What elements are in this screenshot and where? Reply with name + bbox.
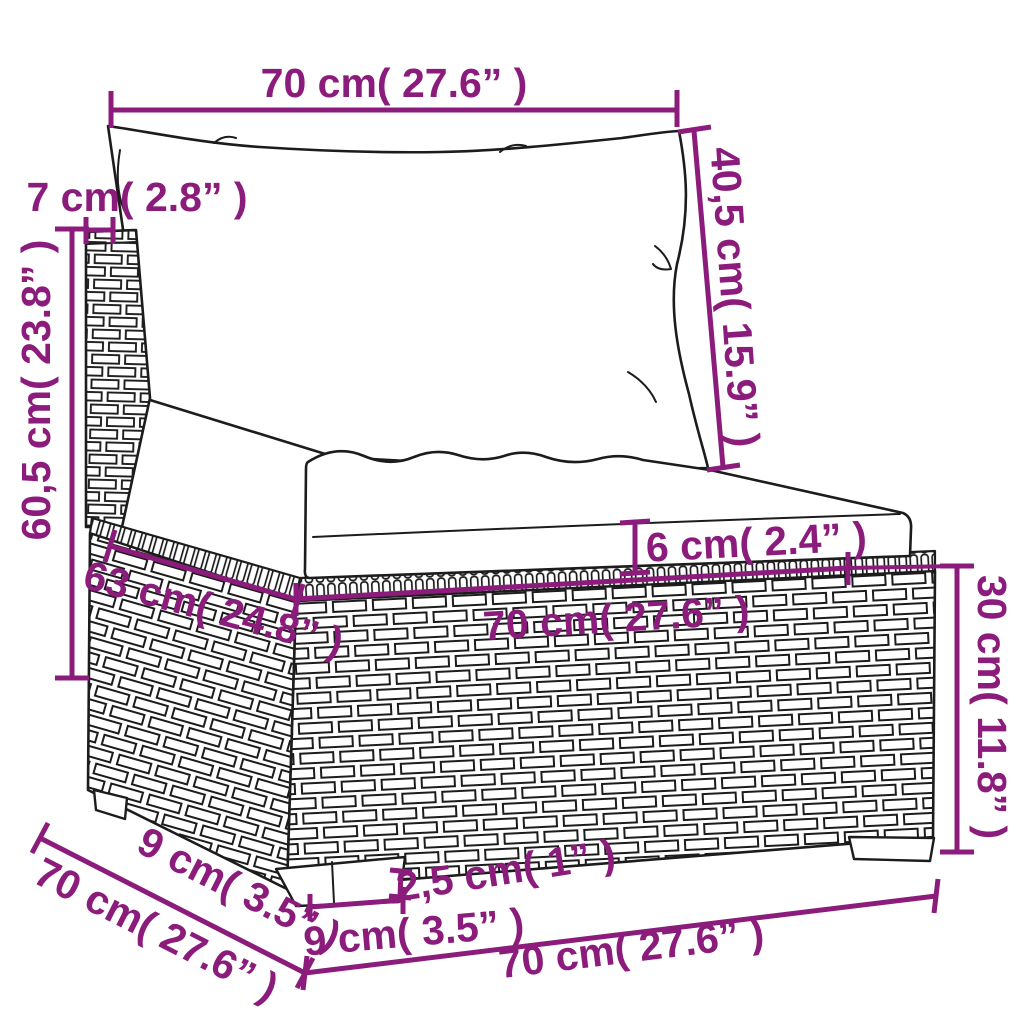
sofa-dimension-diagram: 70 cm( 27.6” ) 40,5 cm( 15.9” ) 7 cm( 2.… — [0, 0, 1024, 1024]
leg-front-right — [849, 837, 934, 861]
dim-total-height-label: 60,5 cm( 23.8” ) — [13, 240, 59, 541]
dimension-diagram-page: 70 cm( 27.6” ) 40,5 cm( 15.9” ) 7 cm( 2.… — [0, 0, 1024, 1024]
dim-base-height-label: 30 cm( 11.8” ) — [969, 575, 1015, 839]
dim-back-thickness-label: 7 cm( 2.8” ) — [26, 174, 247, 220]
dim-back-width-label: 70 cm( 27.6” ) — [261, 60, 528, 106]
